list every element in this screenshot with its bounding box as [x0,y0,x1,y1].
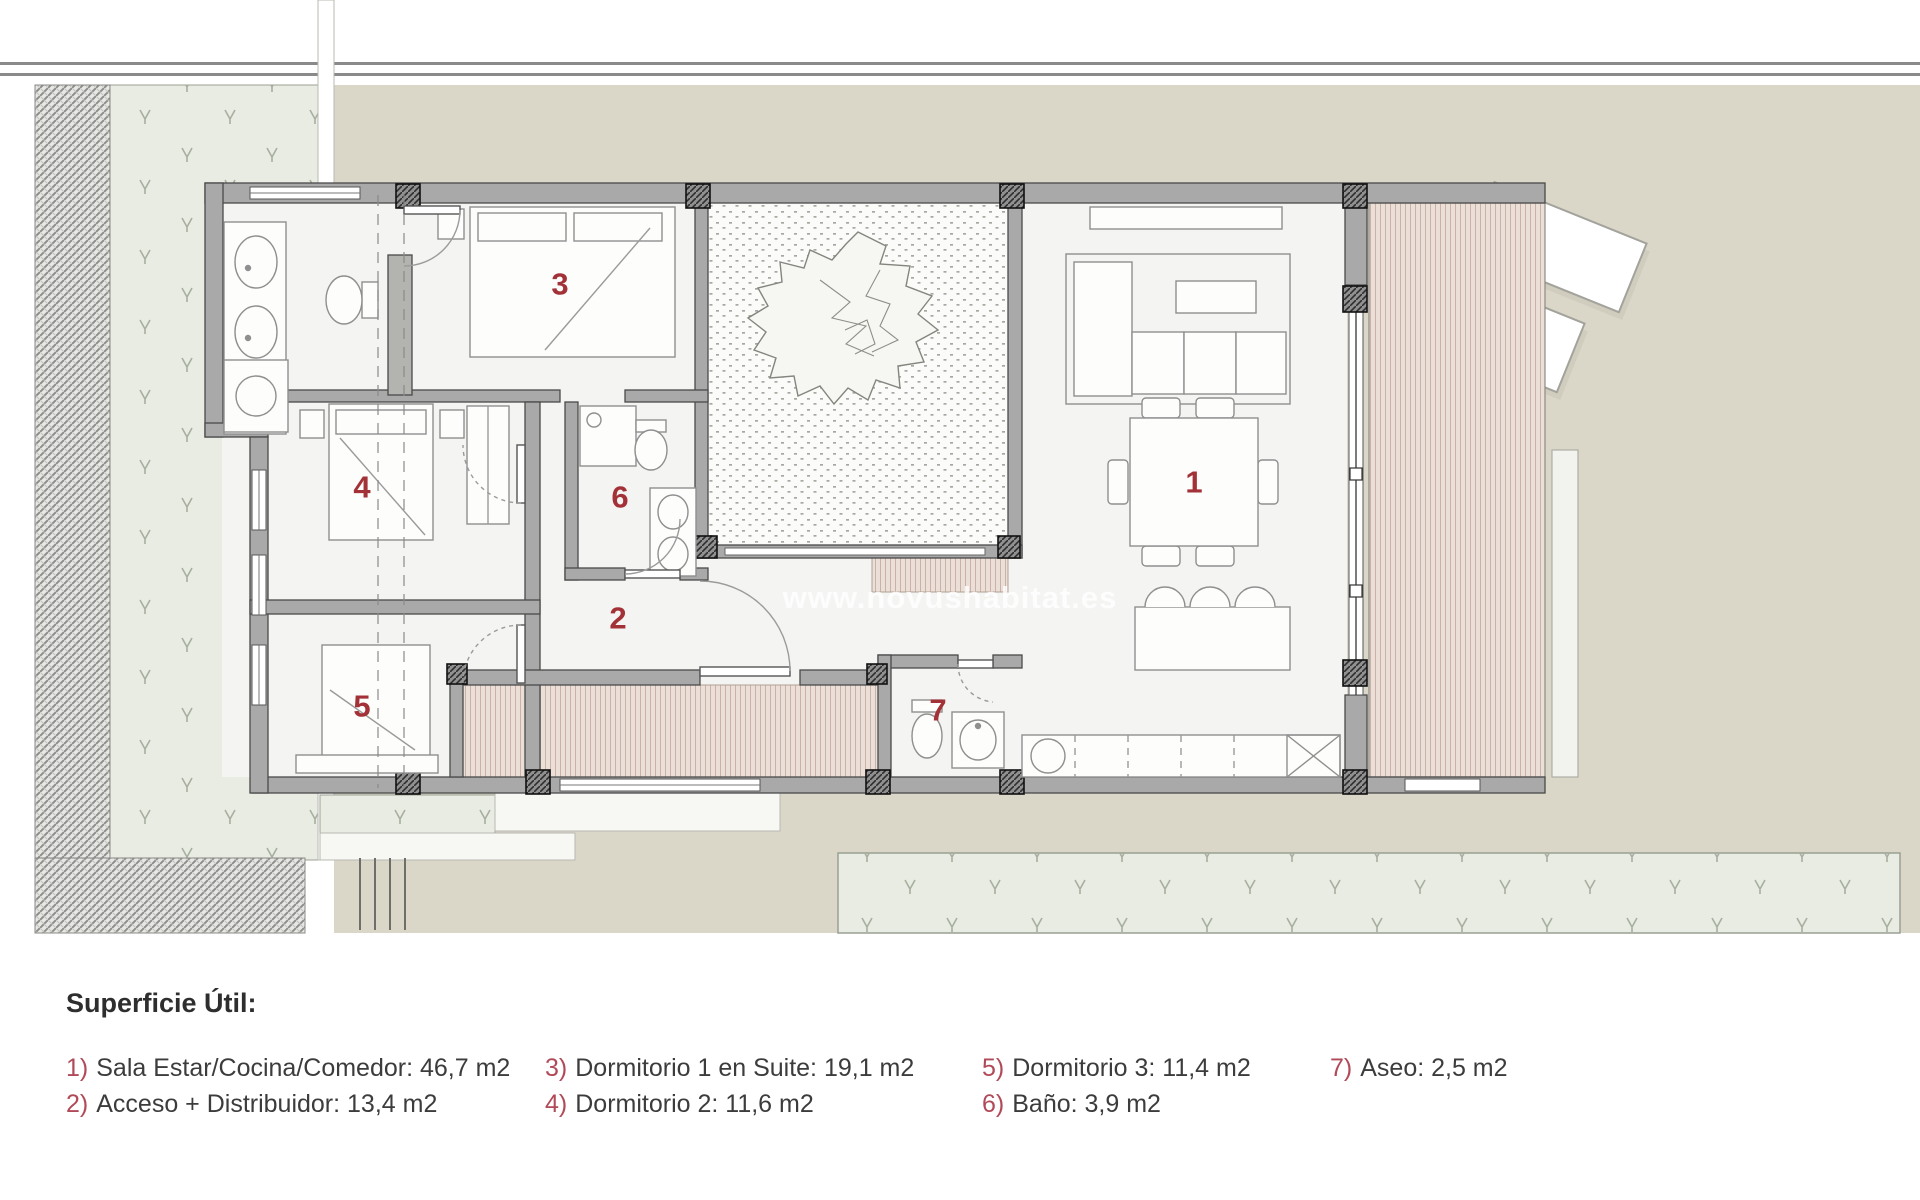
room-label-3: 3 [551,269,568,300]
wall-room3-south-right [625,390,708,402]
toilet-icon [635,430,667,470]
legend-column-3: 5)Dormitorio 3: 11,4 m2 6)Baño: 3,9 m2 [982,1050,1251,1122]
door-south-terrace [1405,779,1480,791]
legend-item-7: 7)Aseo: 2,5 m2 [1330,1050,1508,1086]
legend: Superficie Útil: 1)Sala Estar/Cocina/Com… [0,950,1920,1200]
grass-patch-bottom-left [320,795,495,833]
wall-bath6-south-left [565,568,625,580]
dining-chair [1258,460,1278,504]
room-label-1: 1 [1185,467,1202,498]
pillow [336,410,426,434]
pillow [574,213,662,241]
window-courtyard-south [725,548,985,555]
side-planter-strip [1552,450,1578,777]
watermark: www.novushabitat.es [783,580,1118,616]
room-label-4: 4 [353,472,370,503]
dining-chair [1142,546,1180,566]
garden-bottom-right [838,853,1900,933]
legend-column-1: 1)Sala Estar/Cocina/Comedor: 46,7 m2 2)A… [66,1050,510,1122]
wall-east-stub-bottom [1345,695,1367,777]
toilet-icon [326,276,362,324]
pillow [478,213,566,241]
boundary-line-top [0,62,1920,65]
window-west-3 [252,645,266,705]
wall-east-stub-top [1345,203,1367,285]
bed-bench [296,755,438,773]
nightstand [300,410,324,438]
room-label-5: 5 [353,691,370,722]
boundary-line-bottom [0,73,1920,76]
legend-item-5: 5)Dormitorio 3: 11,4 m2 [982,1050,1251,1086]
room-label-2: 2 [609,603,626,634]
wall-porch-west [450,670,463,777]
legend-column-2: 3)Dormitorio 1 en Suite: 19,1 m2 4)Dormi… [545,1050,914,1122]
nightstand [440,410,464,438]
floor-plan-page: www.novushabitat.es 1 2 3 4 5 6 7 Superf… [0,0,1920,1200]
sofa-seat [1184,332,1236,394]
sink-icon [658,537,688,571]
legend-item-6: 6)Baño: 3,9 m2 [982,1086,1251,1122]
dining-chair [1108,460,1128,504]
legend-item-1: 1)Sala Estar/Cocina/Comedor: 46,7 m2 [66,1050,510,1086]
paving-step [320,833,575,860]
kitchen-island [1135,607,1290,670]
wall-aseo-north-right [993,655,1022,668]
dining-chair [1196,398,1234,418]
room-label-7: 7 [929,695,946,726]
dining-chair [1142,398,1180,418]
glazing-east-wall [1349,285,1363,695]
sink-icon [658,495,688,529]
bed [322,645,430,757]
terrace-deck [1369,203,1545,777]
wall-west-upper [205,183,223,437]
floor-plan-drawing [0,0,1920,950]
site-plan: www.novushabitat.es 1 2 3 4 5 6 7 [0,0,1920,950]
sink-icon [235,306,277,358]
wall-bedrooms-east [525,402,540,777]
sink-icon [235,236,277,288]
window-north-1 [250,187,360,199]
legend-title: Superficie Útil: [66,988,257,1019]
wall-bath6-west [565,402,578,580]
courtyard [708,203,1008,545]
sofa-seat [1236,332,1286,394]
shower-tray [224,360,288,432]
sofa-seat [1132,332,1184,394]
wall-courtyard-east [1008,203,1022,558]
sideboard [1090,207,1282,229]
legend-column-4: 7)Aseo: 2,5 m2 [1330,1050,1508,1086]
legend-item-2: 2)Acceso + Distribuidor: 13,4 m2 [66,1086,510,1122]
plumbing-chase [388,255,412,395]
legend-item-3: 3)Dormitorio 1 en Suite: 19,1 m2 [545,1050,914,1086]
wall-porch-north-left [450,670,700,685]
sofa-chaise [1074,262,1132,396]
dining-chair [1196,546,1234,566]
toilet-tank [362,282,378,318]
legend-item-4: 4)Dormitorio 2: 11,6 m2 [545,1086,914,1122]
window-west-1 [252,470,266,530]
wall-room4-room5 [250,600,540,614]
coffee-table [1176,281,1256,313]
wall-courtyard-west [695,203,708,558]
door-south-porch [560,779,760,791]
entry-walkway [495,793,780,831]
window-west-2 [252,555,266,615]
room-label-6: 6 [611,482,628,513]
